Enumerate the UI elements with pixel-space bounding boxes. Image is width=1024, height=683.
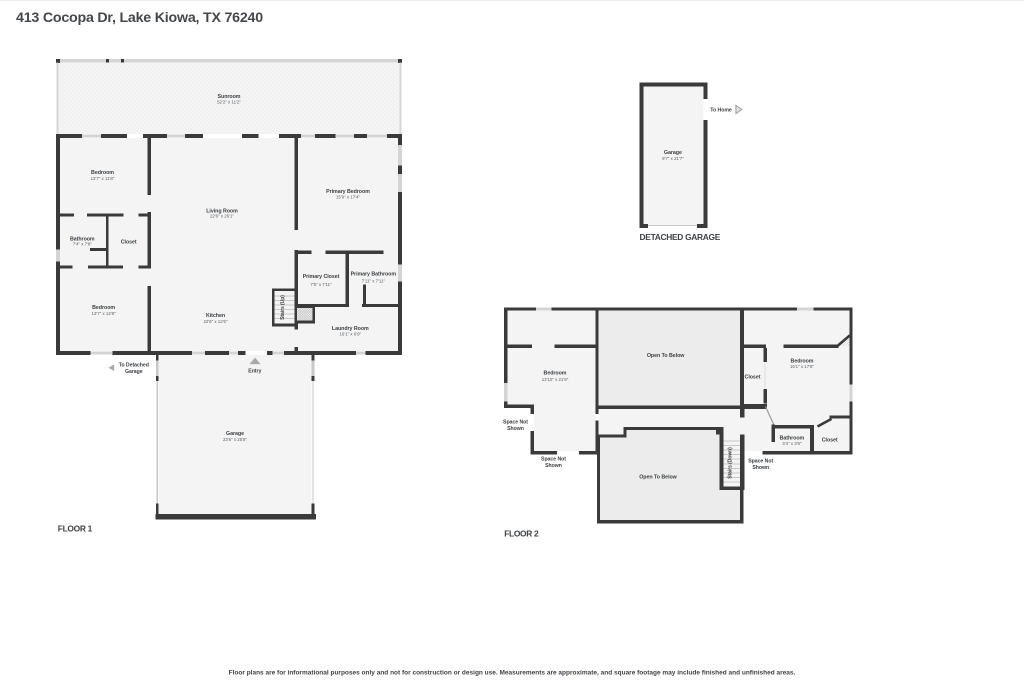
svg-text:Floor plans are for informatio: Floor plans are for informational purpos… [229, 670, 796, 677]
svg-text:Stairs (Down): Stairs (Down) [727, 447, 733, 479]
svg-text:Shown: Shown [545, 463, 562, 469]
svg-text:Kitchen: Kitchen [206, 313, 225, 319]
svg-text:Open To Below: Open To Below [647, 353, 685, 359]
svg-text:Closet: Closet [822, 438, 838, 444]
svg-text:FLOOR 2: FLOOR 2 [504, 529, 539, 539]
svg-text:Space Not: Space Not [541, 456, 566, 462]
svg-text:7'4" x 7'8": 7'4" x 7'8" [73, 242, 93, 247]
svg-text:16'1" x 17'8": 16'1" x 17'8" [790, 364, 815, 369]
svg-text:22'6" x 26'1": 22'6" x 26'1" [210, 214, 235, 219]
svg-text:15'9" x 17'4": 15'9" x 17'4" [336, 195, 361, 200]
svg-text:13'10" x 21'9": 13'10" x 21'9" [542, 377, 569, 382]
svg-text:7'5" x 7'11": 7'5" x 7'11" [310, 282, 332, 287]
svg-text:Stairs (Up): Stairs (Up) [280, 295, 286, 320]
svg-text:3'4" x 3'9": 3'4" x 3'9" [782, 441, 802, 446]
svg-text:To Home: To Home [710, 108, 732, 114]
svg-text:Space Not: Space Not [503, 419, 528, 425]
svg-text:DETACHED GARAGE: DETACHED GARAGE [640, 232, 721, 242]
svg-text:7'11" x 7'11": 7'11" x 7'11" [362, 278, 386, 283]
svg-text:Bedroom: Bedroom [92, 305, 115, 311]
svg-text:Primary Bathroom: Primary Bathroom [351, 271, 397, 277]
svg-text:9'7" x 21'7": 9'7" x 21'7" [662, 156, 684, 161]
svg-text:To Detached: To Detached [119, 362, 149, 368]
svg-text:13'7" x 11'8": 13'7" x 11'8" [91, 176, 115, 181]
svg-text:Closet: Closet [121, 239, 137, 245]
svg-text:Space Not: Space Not [748, 458, 773, 464]
svg-text:13'7" x 12'8": 13'7" x 12'8" [92, 311, 117, 316]
svg-text:Shown: Shown [752, 465, 769, 471]
svg-text:23'6" x 25'8": 23'6" x 25'8" [223, 437, 248, 442]
svg-text:Bedroom: Bedroom [544, 370, 567, 376]
svg-text:52'2" x 11'2": 52'2" x 11'2" [217, 100, 241, 105]
svg-text:Garage: Garage [125, 369, 143, 375]
svg-text:Entry: Entry [248, 369, 261, 375]
svg-text:16'1" x 6'9": 16'1" x 6'9" [339, 332, 361, 337]
svg-text:22'6" x 12'6": 22'6" x 12'6" [203, 319, 228, 324]
svg-text:Garage: Garage [664, 150, 682, 156]
svg-text:Open To Below: Open To Below [639, 475, 677, 481]
svg-text:Shown: Shown [507, 426, 524, 432]
svg-text:Closet: Closet [745, 375, 761, 381]
svg-text:Primary Closet: Primary Closet [303, 274, 340, 280]
svg-text:FLOOR 1: FLOOR 1 [58, 524, 93, 534]
